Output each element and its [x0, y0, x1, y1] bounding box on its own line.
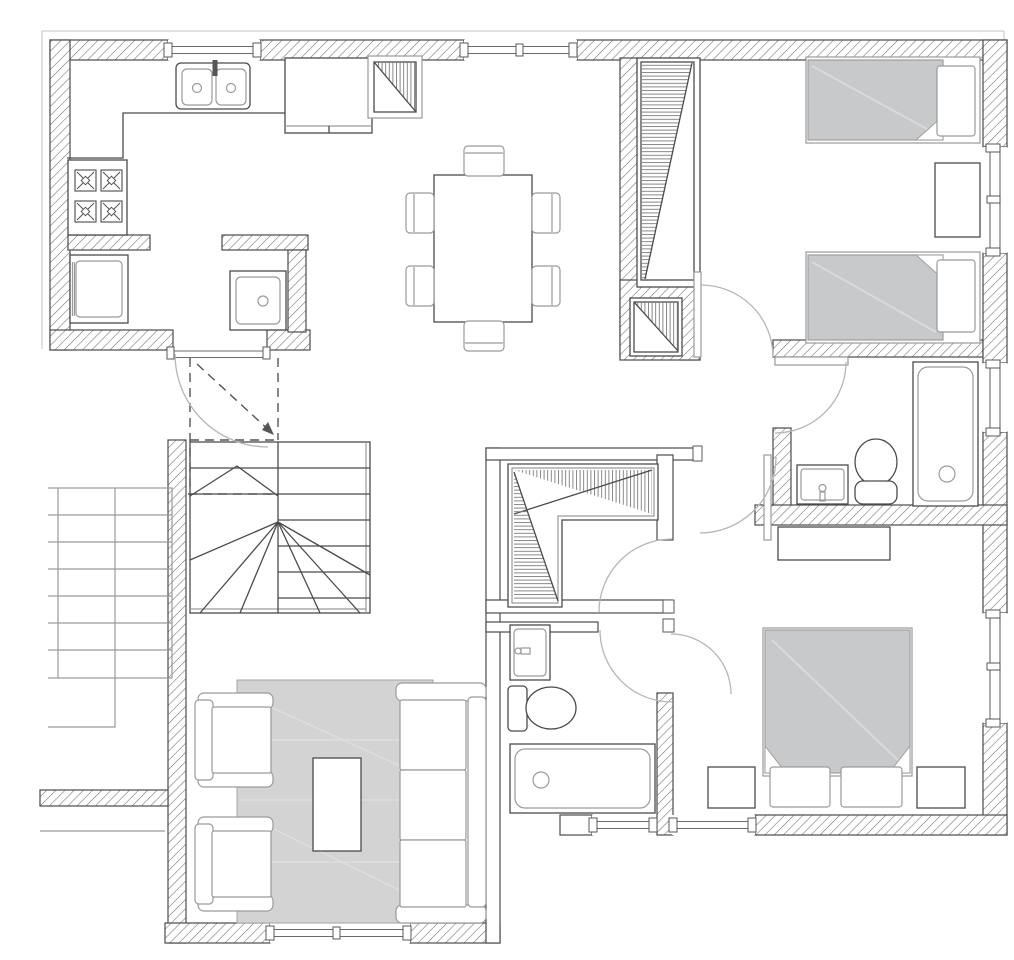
staircase	[167, 347, 370, 613]
walk-in-closet	[508, 457, 776, 612]
dining-area	[406, 146, 560, 351]
nightstand	[917, 767, 965, 808]
door-post	[693, 446, 702, 461]
sofa	[396, 683, 486, 923]
cooktop	[68, 160, 127, 235]
kitchen-sink	[176, 60, 250, 109]
living-room	[195, 680, 486, 923]
counter-edge	[67, 113, 285, 158]
chair	[532, 266, 560, 306]
floor-plan-drawing	[0, 0, 1014, 960]
master-bedroom	[671, 527, 965, 808]
washbasin	[510, 625, 550, 680]
window-bath-south	[589, 815, 657, 835]
door-leaf	[775, 357, 848, 365]
wall	[40, 790, 168, 806]
bathtub	[510, 744, 655, 813]
wall	[755, 505, 1007, 525]
wall	[755, 815, 1007, 835]
wall	[486, 448, 500, 943]
floor-plan-canvas: Apartment floor plan (architectural draw…	[0, 0, 1014, 960]
window-kitchen	[164, 40, 261, 60]
bathtub	[913, 362, 978, 506]
washing-machine	[70, 255, 128, 323]
washbasin	[797, 465, 848, 504]
single-bed-1	[806, 57, 980, 143]
door-post	[663, 600, 674, 613]
armchair	[195, 817, 273, 911]
door-swing	[175, 354, 268, 447]
toilet	[508, 686, 576, 731]
dresser	[778, 527, 890, 560]
exterior-stair	[40, 488, 172, 831]
wall	[267, 330, 310, 350]
wall	[983, 253, 1007, 363]
wall	[983, 40, 1007, 147]
single-bed-2	[806, 252, 980, 343]
dining-table	[434, 175, 532, 322]
kitchen	[67, 56, 422, 330]
coffee-table	[313, 758, 361, 851]
wall	[657, 693, 673, 835]
armchair	[195, 693, 273, 787]
landing-edge	[48, 678, 115, 727]
door-swing	[600, 630, 672, 702]
headroom-dashed-lines	[188, 358, 278, 497]
pillow	[937, 66, 975, 136]
door-leaf	[694, 272, 701, 357]
toilet	[855, 439, 897, 504]
wall	[50, 40, 70, 350]
wall	[560, 815, 592, 835]
window-upper-bathroom	[983, 360, 1007, 436]
wall	[657, 455, 673, 540]
burner	[101, 201, 122, 222]
chair	[532, 193, 560, 233]
pillow	[770, 767, 830, 807]
burner	[75, 170, 96, 191]
wall	[68, 235, 150, 250]
wall	[260, 40, 464, 60]
burner	[101, 170, 122, 191]
double-bed	[763, 628, 912, 807]
chair	[406, 193, 434, 233]
wall	[50, 330, 173, 350]
chair	[406, 266, 434, 306]
utility-sink	[230, 271, 286, 330]
lower-bathroom	[508, 625, 672, 813]
wall	[288, 250, 306, 332]
entry-door	[167, 347, 270, 447]
door-post	[663, 619, 674, 632]
door-swing	[701, 285, 773, 357]
twin-bedroom	[630, 57, 980, 357]
tall-wardrobe	[637, 58, 700, 287]
chair	[464, 146, 504, 176]
chair	[464, 321, 504, 351]
window-twin-bedroom	[983, 144, 1007, 256]
nightstand	[935, 163, 980, 237]
pillow	[841, 767, 902, 807]
window-master-east	[983, 610, 1007, 727]
direction-arrow	[262, 422, 274, 435]
wall	[165, 923, 270, 943]
stair-break-line	[190, 466, 278, 496]
winder-treads	[190, 522, 370, 613]
small-closet	[630, 298, 682, 356]
window-living-room	[266, 923, 411, 943]
door-swing	[775, 362, 846, 433]
burner	[75, 201, 96, 222]
refrigerator	[368, 56, 422, 118]
faucet	[213, 60, 218, 76]
window-master-south	[669, 815, 756, 835]
door-swing	[671, 634, 731, 694]
pillow	[937, 260, 975, 332]
tread-ticks	[48, 488, 58, 678]
l-shaped-wardrobe	[508, 464, 658, 607]
nightstand	[708, 767, 755, 808]
wall	[222, 235, 308, 250]
window-dining	[460, 40, 577, 60]
cabinet	[285, 58, 372, 133]
